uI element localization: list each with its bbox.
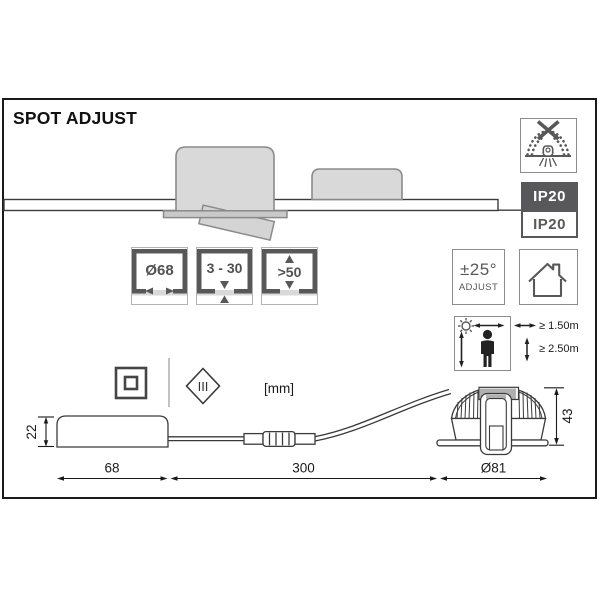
horizontal-arrow-icon [513, 320, 537, 331]
cable-connector [244, 432, 315, 447]
dim-driver-height: 22 [24, 424, 39, 439]
units-note: [mm] [264, 381, 294, 396]
clearance-label: >50 [278, 264, 302, 280]
min-horizontal-distance: ≥ 1.50m [539, 320, 579, 332]
protection-class-symbols: III [116, 358, 220, 407]
datasheet-page: SPOT ADJUST III [0, 0, 600, 600]
dim-spot-diameter: Ø81 [481, 461, 507, 476]
dim-cable-length: 300 [292, 461, 315, 476]
vertical-arrow-icon [521, 336, 533, 363]
indoor-use-icon [519, 249, 578, 305]
tilt-adjust-icon: ±25° ADJUST [452, 249, 505, 305]
spot-luminaire [437, 387, 548, 454]
horizontal-distance-arrow [474, 323, 505, 328]
driver-box [57, 416, 168, 447]
vertical-distance-arrow [459, 332, 464, 368]
lamp-sun-icon [458, 318, 474, 334]
person-silhouette [481, 330, 494, 367]
tilt-angle-value: ±25° [453, 260, 504, 280]
recessed-housing [176, 147, 274, 211]
ceiling-thickness-icon: 3 - 30 [196, 247, 253, 305]
class2-outer-square [116, 368, 146, 398]
dim-spot-height: 43 [560, 408, 575, 423]
trim-flange [164, 211, 288, 218]
ip-rating-badge-secondary: IP20 [521, 210, 578, 238]
clearance-icon: >50 [261, 247, 318, 305]
ip-rating-badge-primary: IP20 [521, 182, 578, 210]
ceiling-section-drawing [4, 147, 521, 240]
class3-numeral: III [198, 379, 209, 394]
thickness-label: 3 - 30 [207, 260, 243, 276]
cutout-label: Ø68 [145, 262, 173, 279]
no-insulation-cover-icon [520, 118, 577, 173]
house-icon [529, 264, 566, 296]
tilt-angle-caption: ADJUST [453, 282, 504, 293]
class2-inner-square [125, 377, 137, 389]
dim-driver-length: 68 [104, 461, 119, 476]
driver-on-ceiling [312, 169, 402, 200]
person-distance-icon [454, 316, 511, 371]
min-vertical-distance: ≥ 2.50m [539, 343, 579, 355]
cutout-diameter-icon: Ø68 [131, 247, 188, 305]
